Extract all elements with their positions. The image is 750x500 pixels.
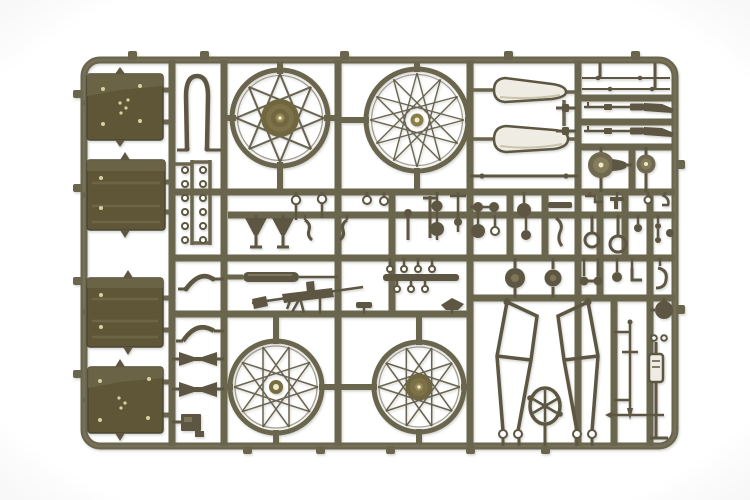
pannier-case-2 bbox=[81, 152, 172, 238]
pannier-case-3 bbox=[81, 270, 172, 355]
pannier-case-1 bbox=[81, 67, 172, 147]
photo-canvas bbox=[0, 0, 750, 500]
sprue-photo bbox=[0, 0, 750, 500]
pannier-case-4 bbox=[81, 359, 172, 441]
